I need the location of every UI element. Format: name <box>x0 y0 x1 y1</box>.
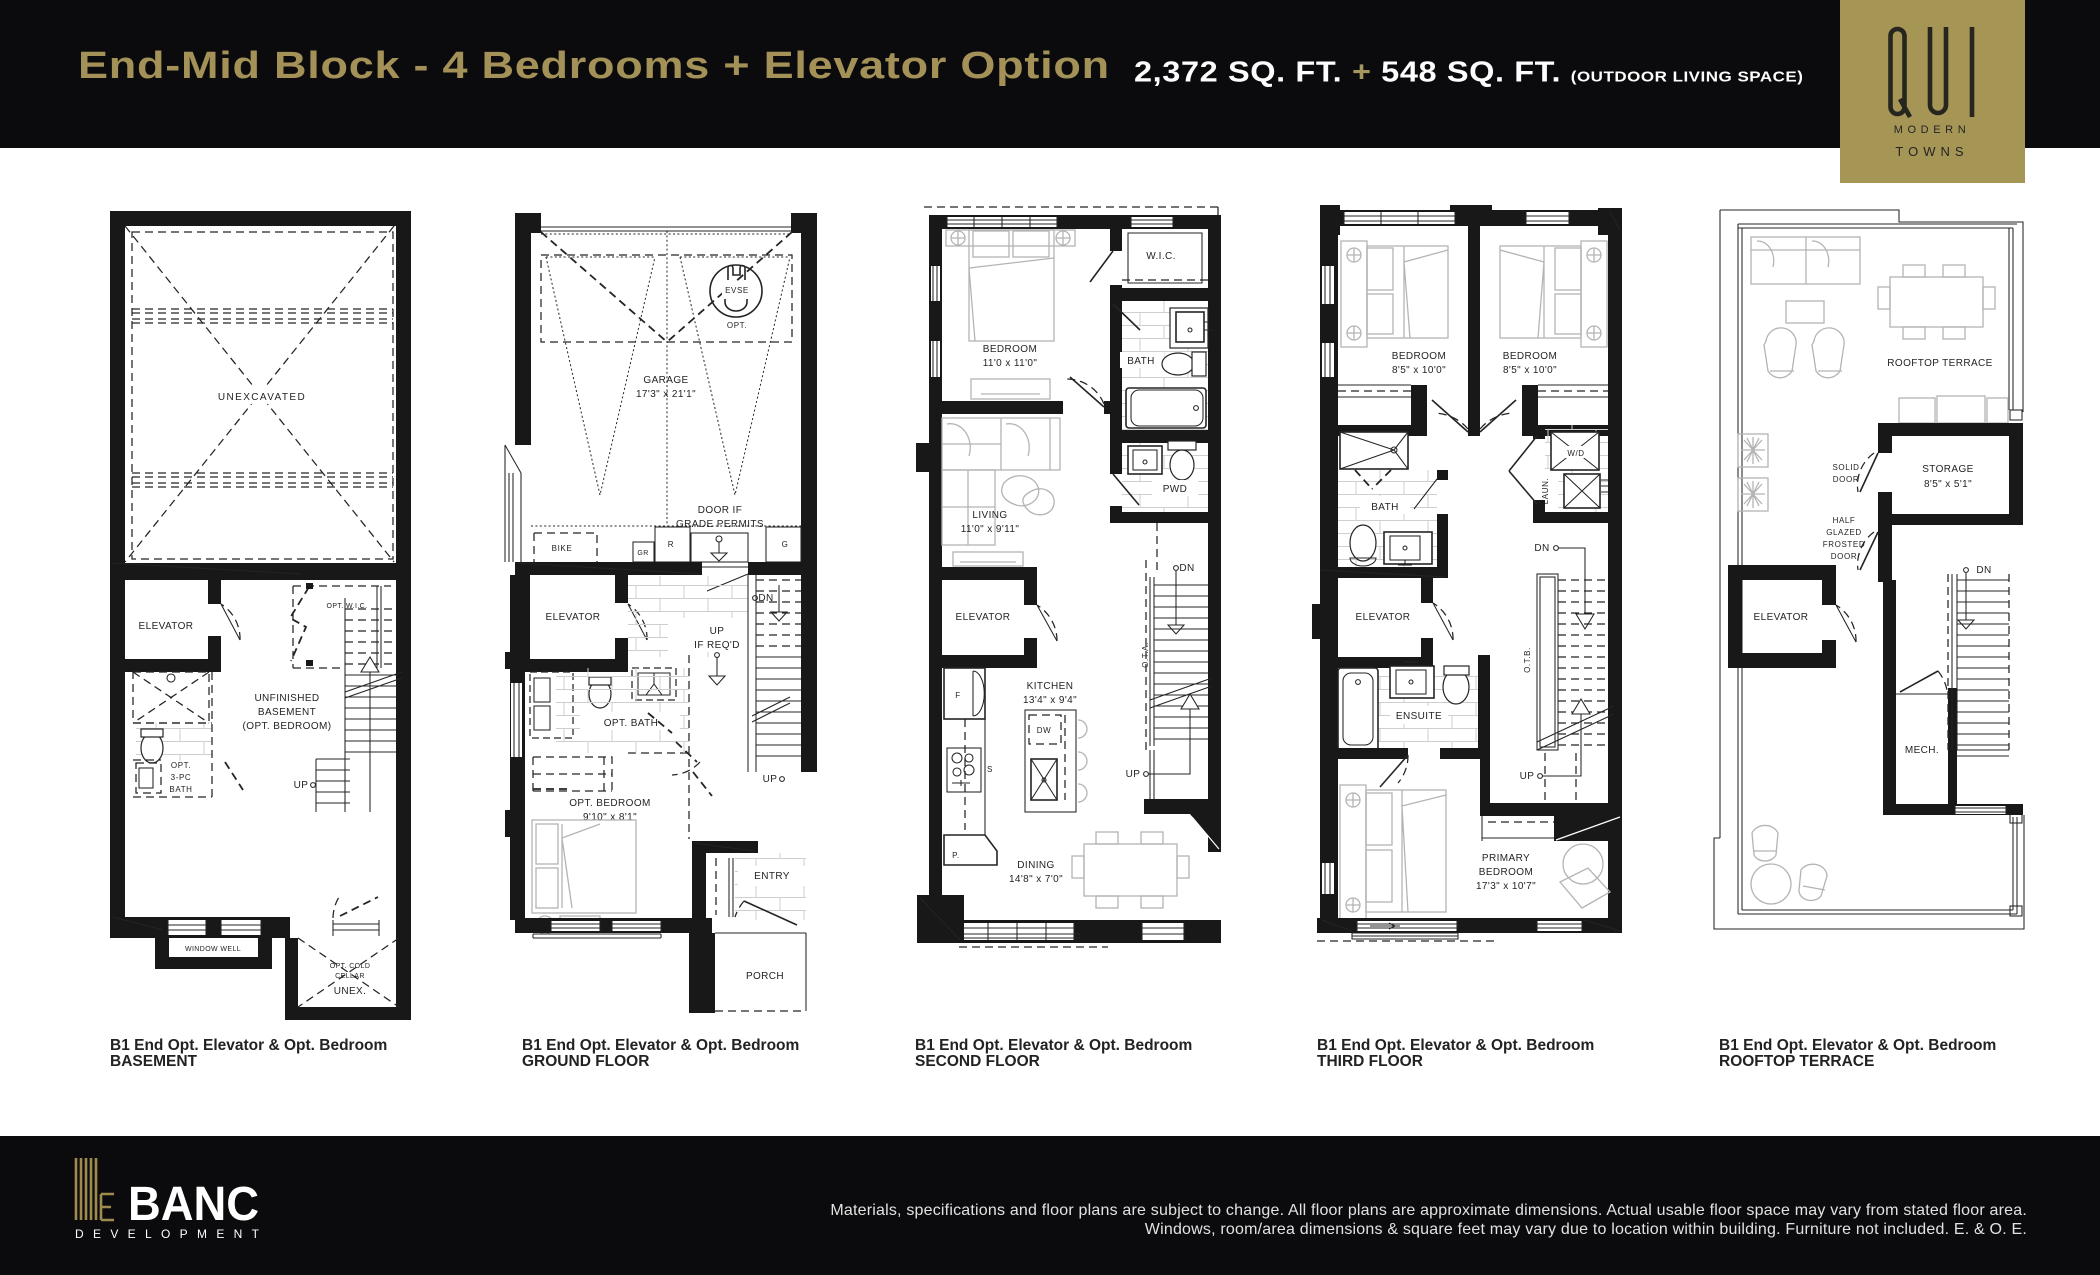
svg-text:IF REQ'D: IF REQ'D <box>694 640 740 651</box>
svg-text:O.T.A.: O.T.A. <box>1141 642 1150 668</box>
svg-text:DN: DN <box>1534 543 1549 554</box>
svg-text:OPT. BATH: OPT. BATH <box>604 718 659 729</box>
svg-text:DN: DN <box>1179 563 1194 574</box>
svg-text:BIKE: BIKE <box>552 544 573 553</box>
svg-text:KITCHEN: KITCHEN <box>1027 681 1074 692</box>
svg-text:LIVING: LIVING <box>972 510 1007 521</box>
svg-text:OPT.: OPT. <box>727 321 747 330</box>
svg-text:11'0" x 9'11": 11'0" x 9'11" <box>961 524 1020 535</box>
svg-text:GRADE PERMITS: GRADE PERMITS <box>676 519 764 530</box>
svg-text:UP: UP <box>763 774 778 785</box>
svg-text:11'0 x 11'0": 11'0 x 11'0" <box>983 358 1038 369</box>
svg-text:UP: UP <box>1126 769 1141 780</box>
svg-text:UP: UP <box>1520 771 1535 782</box>
svg-text:ELEVATOR: ELEVATOR <box>1754 612 1809 623</box>
svg-text:F: F <box>955 691 961 700</box>
svg-text:13'4" x 9'4": 13'4" x 9'4" <box>1023 695 1077 706</box>
svg-text:3-PC: 3-PC <box>171 773 192 782</box>
svg-text:8'5" x 5'1": 8'5" x 5'1" <box>1924 479 1972 490</box>
svg-text:OPT. COLD: OPT. COLD <box>330 963 371 970</box>
svg-text:GR: GR <box>637 550 648 557</box>
svg-text:BATH: BATH <box>1127 356 1155 367</box>
svg-text:WINDOW WELL: WINDOW WELL <box>185 946 241 953</box>
svg-text:PWD: PWD <box>1163 484 1188 495</box>
svg-text:P.: P. <box>952 851 960 860</box>
svg-text:UNEXCAVATED: UNEXCAVATED <box>218 392 306 403</box>
svg-text:W.I.C.: W.I.C. <box>1146 251 1176 262</box>
svg-text:PRIMARY: PRIMARY <box>1482 853 1530 864</box>
svg-text:HALF: HALF <box>1833 516 1856 525</box>
svg-text:EVSE: EVSE <box>725 286 749 295</box>
svg-text:W/D: W/D <box>1567 449 1584 458</box>
svg-text:14'8" x 7'0": 14'8" x 7'0" <box>1009 874 1063 885</box>
svg-text:BATH: BATH <box>169 785 192 794</box>
svg-text:8'5" x 10'0": 8'5" x 10'0" <box>1503 365 1557 376</box>
svg-text:BEDROOM: BEDROOM <box>1479 867 1533 878</box>
svg-text:BEDROOM: BEDROOM <box>983 344 1037 355</box>
svg-text:DOOR: DOOR <box>1831 552 1857 561</box>
svg-text:UNEX.: UNEX. <box>334 986 367 997</box>
svg-text:S: S <box>987 765 993 774</box>
svg-text:17'3" x 21'1": 17'3" x 21'1" <box>636 389 696 400</box>
svg-text:ELEVATOR: ELEVATOR <box>546 612 601 623</box>
svg-text:8'5" x 10'0": 8'5" x 10'0" <box>1392 365 1446 376</box>
svg-text:BEDROOM: BEDROOM <box>1503 351 1557 362</box>
svg-text:CELLAR: CELLAR <box>335 973 365 980</box>
svg-text:OPT.: OPT. <box>171 761 191 770</box>
svg-text:OPT. BEDROOM: OPT. BEDROOM <box>569 798 650 809</box>
svg-text:BATH: BATH <box>1371 502 1399 513</box>
svg-text:DINING: DINING <box>1017 860 1054 871</box>
svg-text:TOWNS: TOWNS <box>1895 144 1968 159</box>
svg-text:ENSUITE: ENSUITE <box>1396 711 1442 722</box>
svg-text:ENTRY: ENTRY <box>754 871 790 882</box>
svg-text:PORCH: PORCH <box>746 971 784 982</box>
svg-text:DW: DW <box>1037 726 1052 735</box>
svg-text:17'3" x 10'7": 17'3" x 10'7" <box>1476 881 1536 892</box>
svg-text:BASEMENT: BASEMENT <box>258 707 316 718</box>
svg-text:UP: UP <box>710 626 725 637</box>
svg-text:ELEVATOR: ELEVATOR <box>956 612 1011 623</box>
svg-text:G: G <box>782 540 789 549</box>
svg-text:ROOFTOP TERRACE: ROOFTOP TERRACE <box>1887 358 1992 369</box>
svg-text:GARAGE: GARAGE <box>643 375 688 386</box>
svg-text:DN: DN <box>1976 565 1991 576</box>
svg-text:GLAZED: GLAZED <box>1826 528 1862 537</box>
svg-text:ELEVATOR: ELEVATOR <box>139 621 194 632</box>
svg-text:MODERN: MODERN <box>1894 124 1971 136</box>
svg-text:UNFINISHED: UNFINISHED <box>254 693 319 704</box>
svg-text:ELEVATOR: ELEVATOR <box>1356 612 1411 623</box>
svg-text:FROSTED: FROSTED <box>1823 540 1865 549</box>
svg-text:BEDROOM: BEDROOM <box>1392 351 1446 362</box>
svg-text:DOOR IF: DOOR IF <box>698 505 742 516</box>
svg-text:UP: UP <box>294 780 309 791</box>
svg-text:O.T.B.: O.T.B. <box>1523 647 1532 673</box>
svg-text:DOOR: DOOR <box>1833 475 1859 484</box>
svg-text:9'10" x 8'1": 9'10" x 8'1" <box>583 812 637 823</box>
svg-text:MECH.: MECH. <box>1905 745 1939 756</box>
svg-text:(OPT. BEDROOM): (OPT. BEDROOM) <box>243 721 332 732</box>
svg-text:R: R <box>668 540 674 549</box>
svg-text:STORAGE: STORAGE <box>1922 464 1974 475</box>
svg-text:SOLID: SOLID <box>1832 463 1859 472</box>
